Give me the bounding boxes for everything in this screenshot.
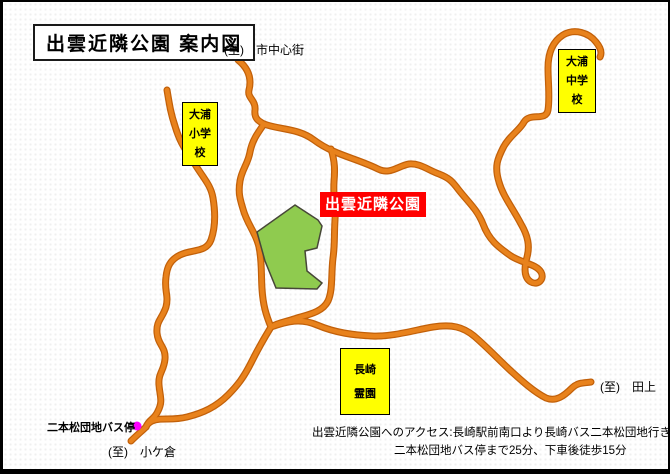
oura-elementary-line2: 小学校 <box>185 125 215 163</box>
access-info-line1: 出雲近隣公園へのアクセス:長崎駅前南口より長崎バス二本松団地行き <box>312 424 670 440</box>
nagasaki-cemetery-label: 長崎 霊園 <box>340 348 390 415</box>
oura-elementary-school-label: 大浦 小学校 <box>182 102 218 166</box>
map-frame: 出雲近隣公園 案内図 (至) 市中心街 大浦 小学校 大浦 中学校 出雲近隣公園… <box>0 0 670 474</box>
to-tagami-label: (至) 田上 <box>600 378 656 395</box>
bus-stop-label: 二本松団地バス停 <box>47 419 135 435</box>
nagasaki-cemetery-line2: 霊園 <box>343 382 387 406</box>
map-title: 出雲近隣公園 案内図 <box>33 24 255 61</box>
park-name-label: 出雲近隣公園 <box>320 192 426 217</box>
oura-elementary-line1: 大浦 <box>185 106 215 125</box>
access-info-line2: 二本松団地バス停まで25分、下車後徒歩15分 <box>394 442 627 458</box>
oura-junior-high-line1: 大浦 <box>561 53 593 72</box>
park-area <box>257 205 322 289</box>
to-city-center-label: (至) 市中心街 <box>224 41 304 58</box>
oura-junior-high-label: 大浦 中学校 <box>558 49 596 113</box>
nagasaki-cemetery-line1: 長崎 <box>343 358 387 382</box>
to-kogakura-label: (至) 小ケ倉 <box>108 443 176 460</box>
oura-junior-high-line2: 中学校 <box>561 72 593 110</box>
